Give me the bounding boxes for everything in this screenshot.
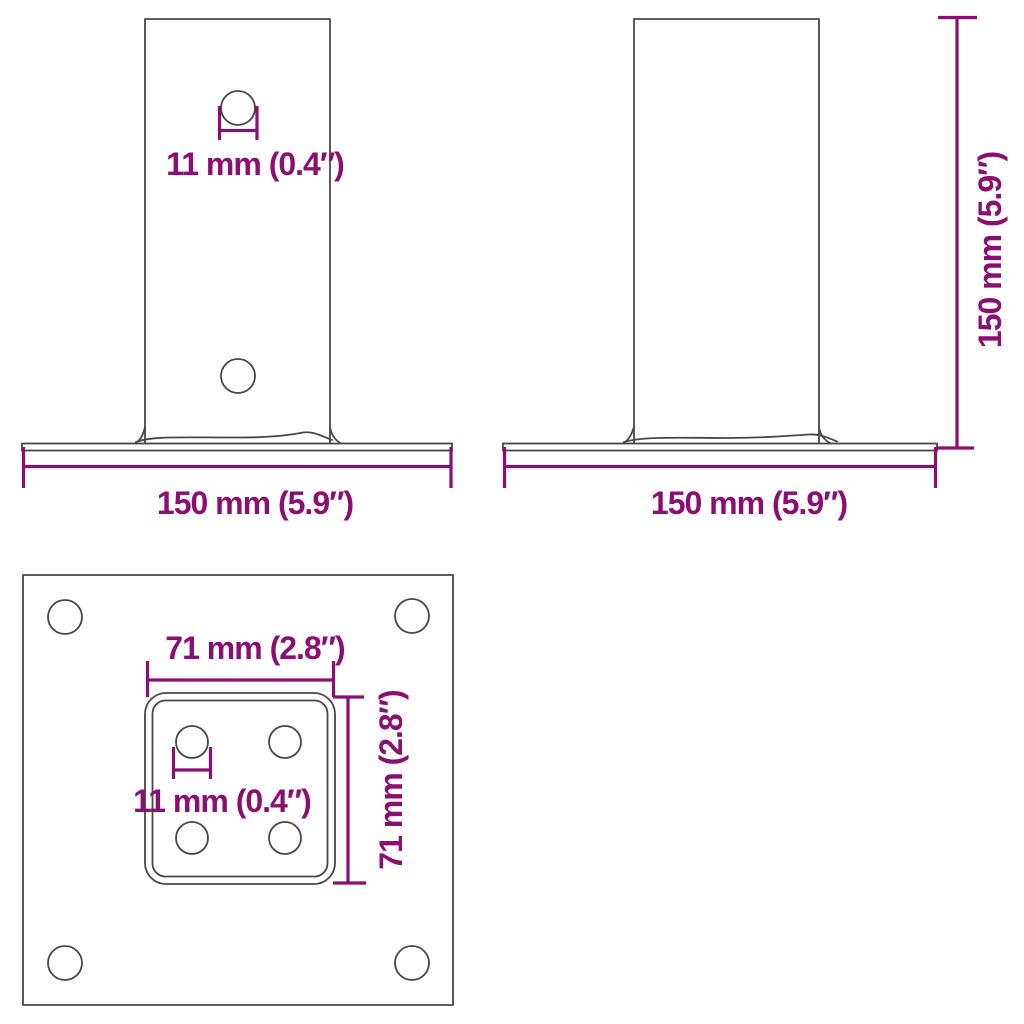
top-corner-hole-br (395, 946, 429, 980)
top-inner-hole-tl (176, 726, 208, 758)
front-post-outline (145, 19, 330, 444)
top-inner-hole-br (269, 822, 301, 854)
top-inner-height-label: 71 mm (2.8″) (375, 690, 407, 869)
front-hole-dimension (220, 106, 258, 140)
side-post-outline (634, 19, 819, 444)
top-inner-hole-tr (269, 726, 301, 758)
side-width-dimension (505, 447, 936, 488)
side-height-dimension (937, 18, 977, 449)
side-height-label: 150 mm (5.9″) (974, 152, 1006, 348)
side-base-plate (503, 444, 937, 451)
front-hole-top (221, 91, 255, 125)
side-view (503, 18, 977, 489)
drawing-linework (0, 0, 1024, 1024)
top-inner-width-label: 71 mm (2.8″) (165, 632, 344, 664)
top-corner-hole-bl (48, 946, 82, 980)
top-width-dimension (148, 661, 334, 697)
side-base-width-label: 150 mm (5.9″) (651, 487, 847, 519)
front-view (22, 19, 452, 488)
side-weld-bead (622, 427, 837, 444)
top-corner-hole-tl (48, 600, 82, 634)
top-hole-diameter-label: 11 mm (0.4″) (133, 785, 311, 817)
top-inner-hole-bl (176, 822, 208, 854)
front-hole-bottom (221, 359, 255, 393)
technical-drawing-canvas: 11 mm (0.4″) 150 mm (5.9″) 150 mm (5.9″)… (0, 0, 1024, 1024)
top-height-dimension (333, 697, 366, 883)
front-weld-bead (134, 427, 342, 444)
top-corner-hole-tr (395, 599, 429, 633)
front-width-dimension (24, 447, 452, 488)
front-base-plate (22, 444, 452, 451)
front-hole-diameter-label: 11 mm (0.4″) (166, 148, 344, 180)
front-base-width-label: 150 mm (5.9″) (157, 487, 353, 519)
